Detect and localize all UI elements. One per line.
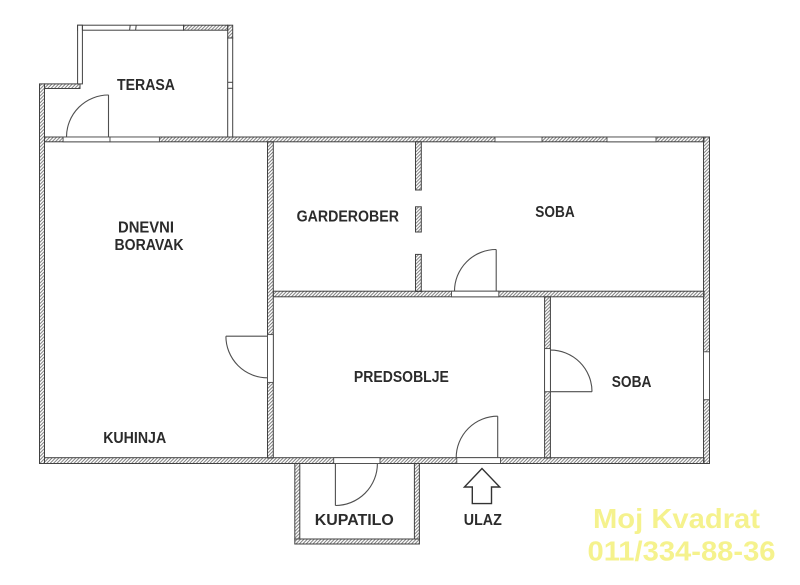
svg-text:KUPATILO: KUPATILO [315,512,394,529]
svg-text:GARDEROBER: GARDEROBER [297,208,399,225]
svg-text:ULAZ: ULAZ [464,512,502,529]
svg-text:SOBA: SOBA [535,204,574,221]
svg-text:011/334-88-36: 011/334-88-36 [588,536,776,567]
svg-text:BORAVAK: BORAVAK [115,237,185,254]
svg-text:TERASA: TERASA [117,77,175,94]
svg-text:KUHINJA: KUHINJA [103,430,166,447]
svg-text:SOBA: SOBA [612,374,652,391]
svg-text:PREDSOBLJE: PREDSOBLJE [354,369,449,386]
svg-text:Moj Kvadrat: Moj Kvadrat [593,503,760,534]
svg-text:DNEVNI: DNEVNI [118,219,174,236]
